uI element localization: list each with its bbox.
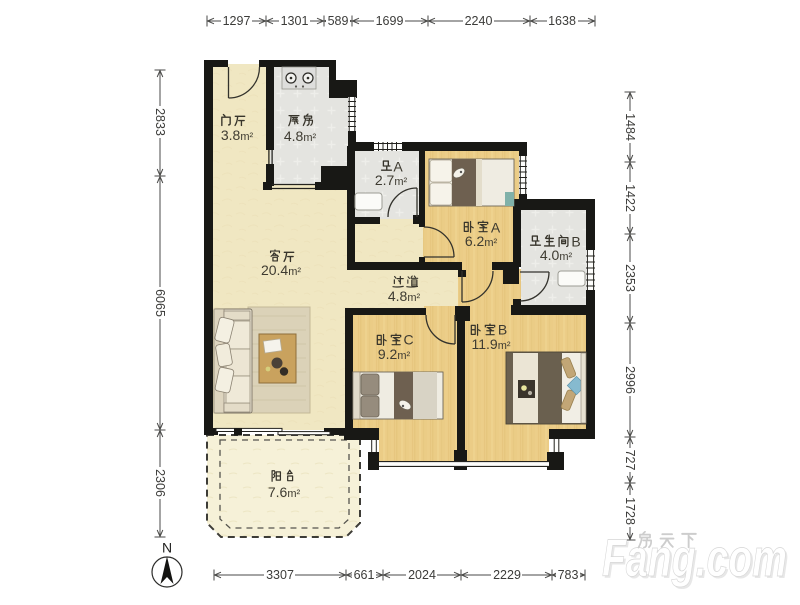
svg-text:1638: 1638	[548, 14, 576, 28]
svg-text:6065: 6065	[153, 289, 167, 317]
svg-text:2353: 2353	[623, 264, 637, 292]
svg-text:2996: 2996	[623, 366, 637, 394]
svg-text:1422: 1422	[623, 184, 637, 212]
svg-text:2306: 2306	[153, 469, 167, 497]
svg-text:3307: 3307	[266, 568, 294, 582]
svg-text:A: A	[393, 159, 403, 175]
svg-text:Fang.com: Fang.com	[602, 529, 787, 588]
svg-text:B: B	[498, 322, 507, 338]
svg-text:727: 727	[623, 450, 637, 471]
svg-text:A: A	[491, 220, 501, 236]
svg-text:1728: 1728	[623, 497, 637, 525]
svg-text:B: B	[571, 234, 580, 250]
svg-text:1297: 1297	[223, 14, 251, 28]
svg-text:2229: 2229	[493, 568, 521, 582]
svg-text:589: 589	[328, 14, 349, 28]
svg-text:2024: 2024	[408, 568, 436, 582]
svg-text:1699: 1699	[376, 14, 404, 28]
svg-text:661: 661	[354, 568, 375, 582]
svg-text:N: N	[162, 540, 172, 556]
svg-text:2240: 2240	[465, 14, 493, 28]
svg-text:1484: 1484	[623, 113, 637, 141]
svg-text:C: C	[403, 332, 413, 348]
svg-text:2833: 2833	[153, 108, 167, 136]
svg-text:1301: 1301	[281, 14, 309, 28]
svg-text:783: 783	[558, 568, 579, 582]
